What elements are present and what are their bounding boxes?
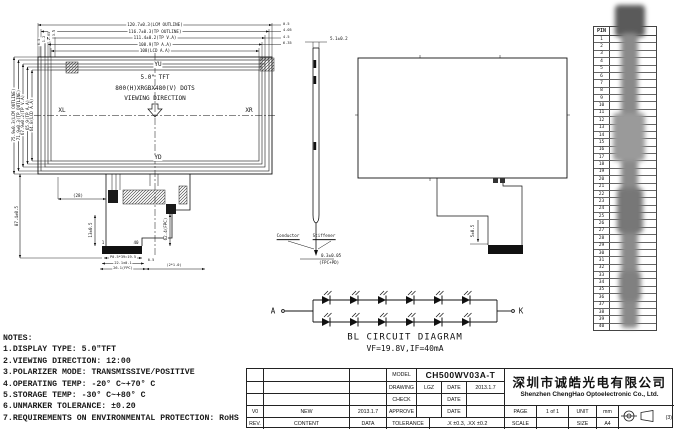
dim-thickness: 5.1±0.2 <box>330 37 348 41</box>
led-symbol <box>378 291 388 305</box>
panel-dots-text: 800(H)XRGBX480(V) DOTS <box>115 86 194 92</box>
corner-hatch-left <box>66 62 78 73</box>
tb-empty <box>349 393 386 405</box>
bl-circuit-title: BL CIRCUIT DIAGRAM <box>347 334 463 343</box>
pin-number: 15 <box>594 139 610 145</box>
gap-top-4: 3.5 <box>53 29 57 38</box>
pin-first-label: 1 <box>102 240 105 244</box>
bl-circuit-wires <box>282 300 515 322</box>
pin-number: 6 <box>594 73 610 79</box>
bl-circuit-leds <box>322 291 472 327</box>
dir-label-yu: YU <box>153 62 162 68</box>
conductor-label: Conductor <box>277 234 300 240</box>
dim-26: 26.1(FPC) <box>112 267 133 271</box>
pin-number: 5 <box>594 66 610 72</box>
tb-scale-value <box>536 417 568 429</box>
pin-number: 13 <box>594 125 610 131</box>
pin-number: 11 <box>594 110 610 116</box>
pin-number: 24 <box>594 206 610 212</box>
pin-number: 16 <box>594 147 610 153</box>
pin-number: 17 <box>594 154 610 160</box>
led-symbol <box>434 291 444 305</box>
pin-number: 18 <box>594 161 610 167</box>
tb-size-label: SIZE <box>568 417 596 429</box>
pin-number: 10 <box>594 102 610 108</box>
dim-lcd-aa-v: 64.8(LCD A.A) <box>30 98 34 133</box>
pin-number: 36 <box>594 294 610 300</box>
tb-page-label: PAGE <box>504 405 536 417</box>
dim-87: 87.4±0.5 <box>15 205 19 227</box>
dim-lcm-outline-h: 120.7±0.3(LCM OUTLINE) <box>126 23 183 27</box>
tb-scale-label: SCALE <box>504 417 536 429</box>
tb-tolerance-label: TOLERANCE <box>386 417 429 429</box>
pin-number: 7 <box>594 80 610 86</box>
tb-page-value: 1 of 1 <box>536 405 568 417</box>
panel-size-text: 5.0" TFT <box>141 75 170 81</box>
pin-last-label: 40 <box>133 240 138 244</box>
tb-empty <box>349 381 386 393</box>
pin-number: 22 <box>594 191 610 197</box>
pin-number: 30 <box>594 250 610 256</box>
projection-note: (3) <box>666 415 672 421</box>
led-symbol <box>406 291 416 305</box>
tb-rev-id: V0 <box>247 405 263 417</box>
tb-approve-label: APPROVE <box>386 405 416 417</box>
dim-fpc-thickness: 0.3±0.05 <box>321 254 341 258</box>
censored-pin-names <box>609 3 659 333</box>
side-mark-1 <box>314 60 317 68</box>
gap-right-4: 6.35 <box>283 42 292 46</box>
tb-rev-content: NEW <box>263 405 349 417</box>
pin-number: 1 <box>594 36 610 42</box>
dim-22: 22.1±0.1 <box>113 262 132 266</box>
bl-circuit-spec: VF=19.8V,IF=40mA <box>366 345 443 353</box>
dim-05: 0.5 <box>148 259 155 263</box>
pin-number: 28 <box>594 235 610 241</box>
dim-2x1: (2*1.0) <box>165 264 182 268</box>
pin-number: 40 <box>594 324 610 330</box>
pin-number: 38 <box>594 309 610 315</box>
dim-lcd-aa-h: 108(LCD A.A) <box>139 49 171 53</box>
pin-number: 27 <box>594 228 610 234</box>
led-symbol <box>462 313 472 327</box>
led-symbol <box>378 313 388 327</box>
led-symbol <box>462 291 472 305</box>
pin-header-label: PIN <box>594 27 610 35</box>
note-item: 6.UNMARKER TOLERANCE: ±0.20 <box>3 401 239 412</box>
tb-empty <box>349 369 386 381</box>
note-item: 3.POLARIZER MODE: TRANSMISSIVE/POSITIVE <box>3 367 239 378</box>
tb-empty <box>263 393 349 405</box>
pin-number: 12 <box>594 117 610 123</box>
dir-label-yd: YD <box>153 155 162 161</box>
note-item: 7.REQUIREMENTS ON ENVIRONMENTAL PROTECTI… <box>3 413 239 424</box>
tb-approve-value <box>416 405 441 417</box>
side-mark-2 <box>314 76 317 84</box>
fpc-pd-label: (FPC+PD) <box>319 260 339 264</box>
fpc-pad-black-2 <box>166 204 176 214</box>
pin-number: 39 <box>594 316 610 322</box>
note-item: 2.VIEWING DIRECTION: 12:00 <box>3 356 239 367</box>
datasheet-page: 120.7±0.3(LCM OUTLINE) 116.7±0.3(TP OUTL… <box>0 0 680 430</box>
note-item: 5.STORAGE TEMP: -30° C~+80° C <box>3 390 239 401</box>
pin-number: 35 <box>594 287 610 293</box>
side-fpc-arrow <box>314 250 318 256</box>
tb-date-label: DATE <box>441 405 466 417</box>
fpc-tail-front <box>106 174 190 246</box>
company-name-cn: 深圳市诚皓光电有限公司 <box>512 376 666 390</box>
tb-size-value: A4 <box>596 417 618 429</box>
led-symbol <box>434 313 444 327</box>
led-symbol <box>322 291 332 305</box>
pin-number: 19 <box>594 169 610 175</box>
tb-check-label: CHECK <box>386 393 416 405</box>
side-mark-3 <box>314 142 317 150</box>
tb-approve-date <box>466 405 504 417</box>
gap-right-2: 4.05 <box>283 29 292 33</box>
title-block: V0 NEW 2013.1.7 REV. CONTENT DATA MODEL … <box>246 368 673 428</box>
pin-number: 29 <box>594 243 610 249</box>
tb-unit-value: mm <box>596 405 618 417</box>
tb-drawing-value: LGZ <box>416 381 441 393</box>
pin-number: 32 <box>594 265 610 271</box>
fpc-pad-hatched <box>123 190 165 204</box>
anode-label: A <box>271 307 276 315</box>
pin-number: 21 <box>594 184 610 190</box>
tb-projection-cell: (3) <box>618 405 674 429</box>
dim-back-5: 5±0.5 <box>471 224 475 239</box>
led-symbol <box>406 313 416 327</box>
tb-check-date <box>466 393 504 405</box>
pin-number: 31 <box>594 257 610 263</box>
led-symbol <box>350 291 360 305</box>
led-symbol <box>322 313 332 327</box>
dir-label-xl: XL <box>57 108 66 114</box>
pin-number: 14 <box>594 132 610 138</box>
tb-content-header: CONTENT <box>263 417 349 429</box>
fpc-pad-hatched-2 <box>179 186 187 204</box>
tb-model-value: CH500WV03A-T <box>416 369 504 381</box>
notes-block: NOTES: 1.DISPLAY TYPE: 5.0"TFT 2.VIEWING… <box>3 333 239 424</box>
dim-tp-outline-h: 116.7±0.3(TP OUTLINE) <box>128 29 183 33</box>
dir-label-xr: XR <box>244 108 253 114</box>
pin-number: 2 <box>594 43 610 49</box>
note-item: 1.DISPLAY TYPE: 5.0"TFT <box>3 344 239 355</box>
pin-number: 26 <box>594 220 610 226</box>
fpc-connector-bar-back <box>488 245 523 254</box>
company-name-en: Shenzhen ChengHao Optoelectronic Co., Lt… <box>520 391 658 398</box>
tb-date-label: DATE <box>441 381 466 393</box>
pin-number: 33 <box>594 272 610 278</box>
back-notch-2 <box>500 178 505 183</box>
tb-empty <box>247 393 263 405</box>
tb-empty <box>247 381 263 393</box>
tb-rev-header: REV. <box>247 417 263 429</box>
tb-rev-date: 2013.1.7 <box>349 405 386 417</box>
pin-number: 37 <box>594 302 610 308</box>
notes-title: NOTES: <box>3 333 239 344</box>
dim-28: (28) <box>72 194 84 198</box>
gap-right-3: 4.5 <box>283 36 290 40</box>
tb-drawing-date: 2013.1.7 <box>466 381 504 393</box>
dim-tp-aa-h: 108.9(TP A.A) <box>138 42 173 46</box>
gap-right-1: 0.5 <box>283 23 290 27</box>
pin-number: 9 <box>594 95 610 101</box>
pin-number: 23 <box>594 198 610 204</box>
back-view <box>355 55 570 245</box>
pin-number: 8 <box>594 88 610 94</box>
dim-pitch: P0.5*39=19.5 <box>109 256 137 260</box>
tb-check-value <box>416 393 441 405</box>
back-notch-1 <box>493 178 498 183</box>
tb-unit-label: UNIT <box>568 405 596 417</box>
cathode-label: K <box>519 307 524 315</box>
pin-number: 34 <box>594 279 610 285</box>
viewing-direction-text: VIEWING DIRECTION <box>124 96 185 102</box>
dim-tp-va-h: 111.4±0.2(TP V.A) <box>133 36 178 40</box>
note-item: 4.OPERATING TEMP: -20° C~+70° C <box>3 379 239 390</box>
side-view <box>288 48 334 259</box>
fpc-pad-black-1 <box>108 190 118 203</box>
tb-drawing-label: DRAWING <box>386 381 416 393</box>
tb-tolerance-value: .X ±0.3, .XX ±0.2 <box>429 417 504 429</box>
tb-data-header: DATA <box>349 417 386 429</box>
pin-number: 3 <box>594 51 610 57</box>
tb-model-label: MODEL <box>386 369 416 381</box>
tb-empty <box>247 369 263 381</box>
tb-company: 深圳市诚皓光电有限公司 Shenzhen ChengHao Optoelectr… <box>504 369 674 405</box>
pin-number: 25 <box>594 213 610 219</box>
dim-13: 13±0.5 <box>89 221 93 238</box>
pin-number: 20 <box>594 176 610 182</box>
dim-62: 62.4(FPC) <box>164 217 168 242</box>
fpc-connector-bar-front <box>102 246 142 254</box>
pin-number: 4 <box>594 58 610 64</box>
led-symbol <box>350 313 360 327</box>
tb-empty <box>263 381 349 393</box>
tb-date-label: DATE <box>441 393 466 405</box>
tb-empty <box>263 369 349 381</box>
stiffener-label: Stiffener <box>313 234 336 240</box>
